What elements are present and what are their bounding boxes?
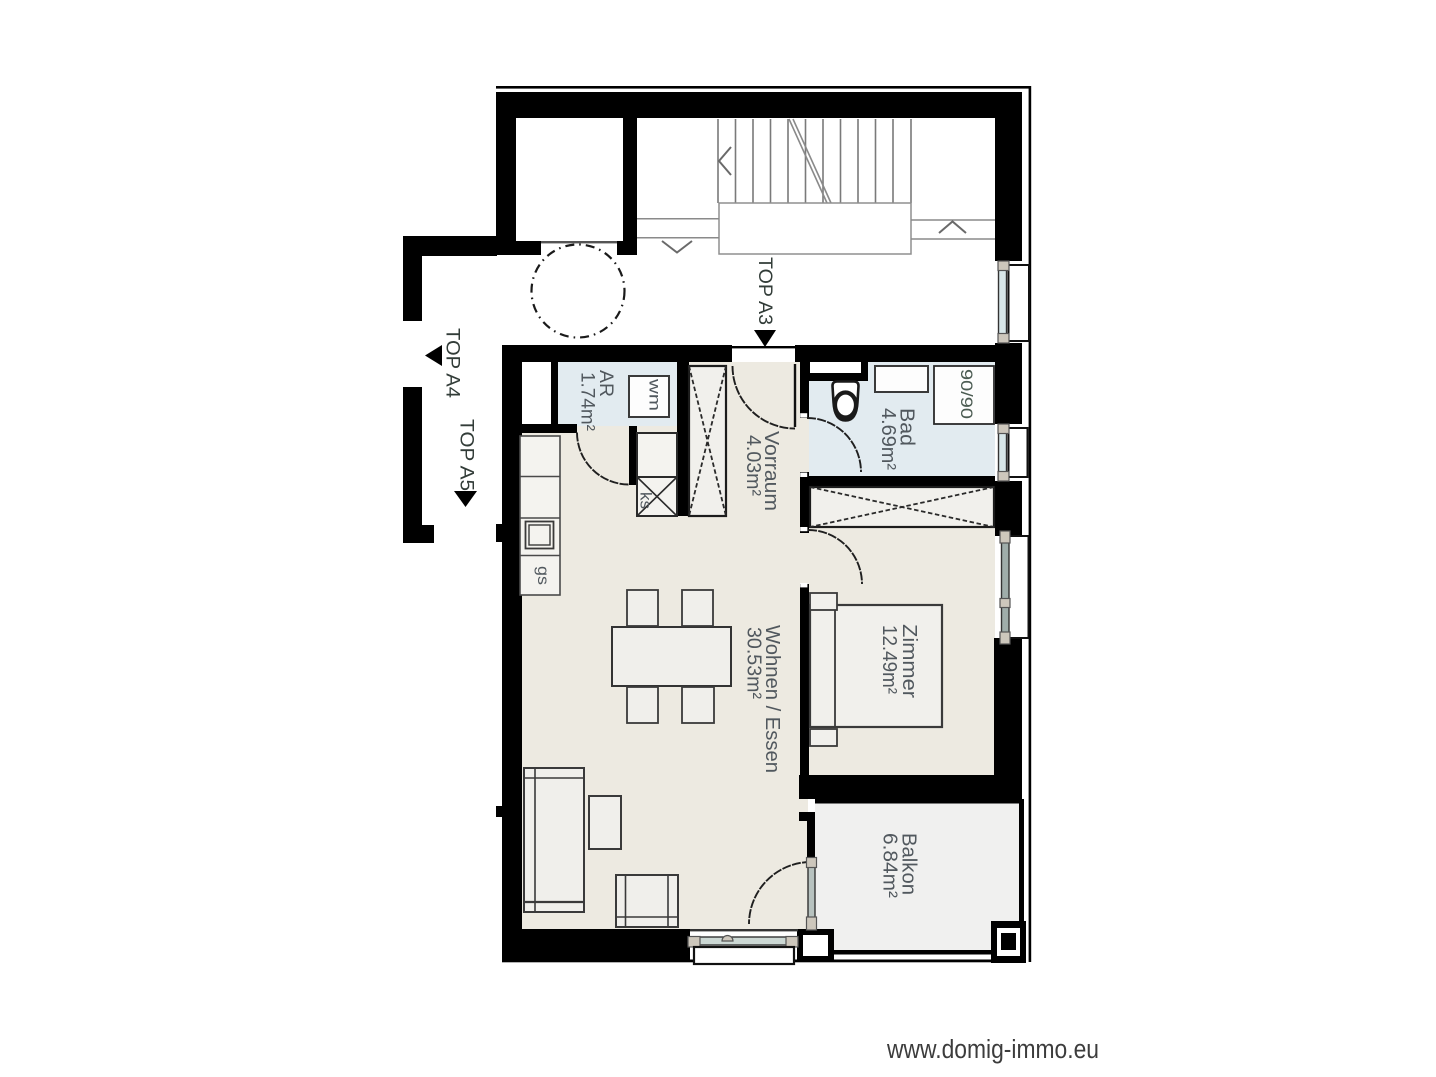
svg-text:30.53m²: 30.53m²: [743, 627, 765, 699]
svg-text:90/90: 90/90: [957, 369, 976, 419]
svg-text:ks: ks: [637, 492, 654, 509]
svg-text:gs: gs: [534, 566, 551, 585]
svg-text:TOP A4: TOP A4: [442, 328, 464, 398]
svg-text:Zimmer: Zimmer: [898, 624, 920, 698]
svg-text:TOP A5: TOP A5: [456, 419, 478, 491]
svg-text:wm: wm: [646, 378, 663, 411]
svg-text:12.49m²: 12.49m²: [878, 625, 900, 694]
svg-text:TOP A3: TOP A3: [754, 257, 776, 325]
svg-text:www.domig-immo.eu: www.domig-immo.eu: [886, 1036, 1099, 1064]
svg-text:6.84m²: 6.84m²: [879, 833, 901, 898]
svg-text:4.03m²: 4.03m²: [742, 435, 764, 496]
svg-text:4.69m²: 4.69m²: [877, 408, 899, 470]
svg-text:1.74m²: 1.74m²: [577, 372, 598, 431]
